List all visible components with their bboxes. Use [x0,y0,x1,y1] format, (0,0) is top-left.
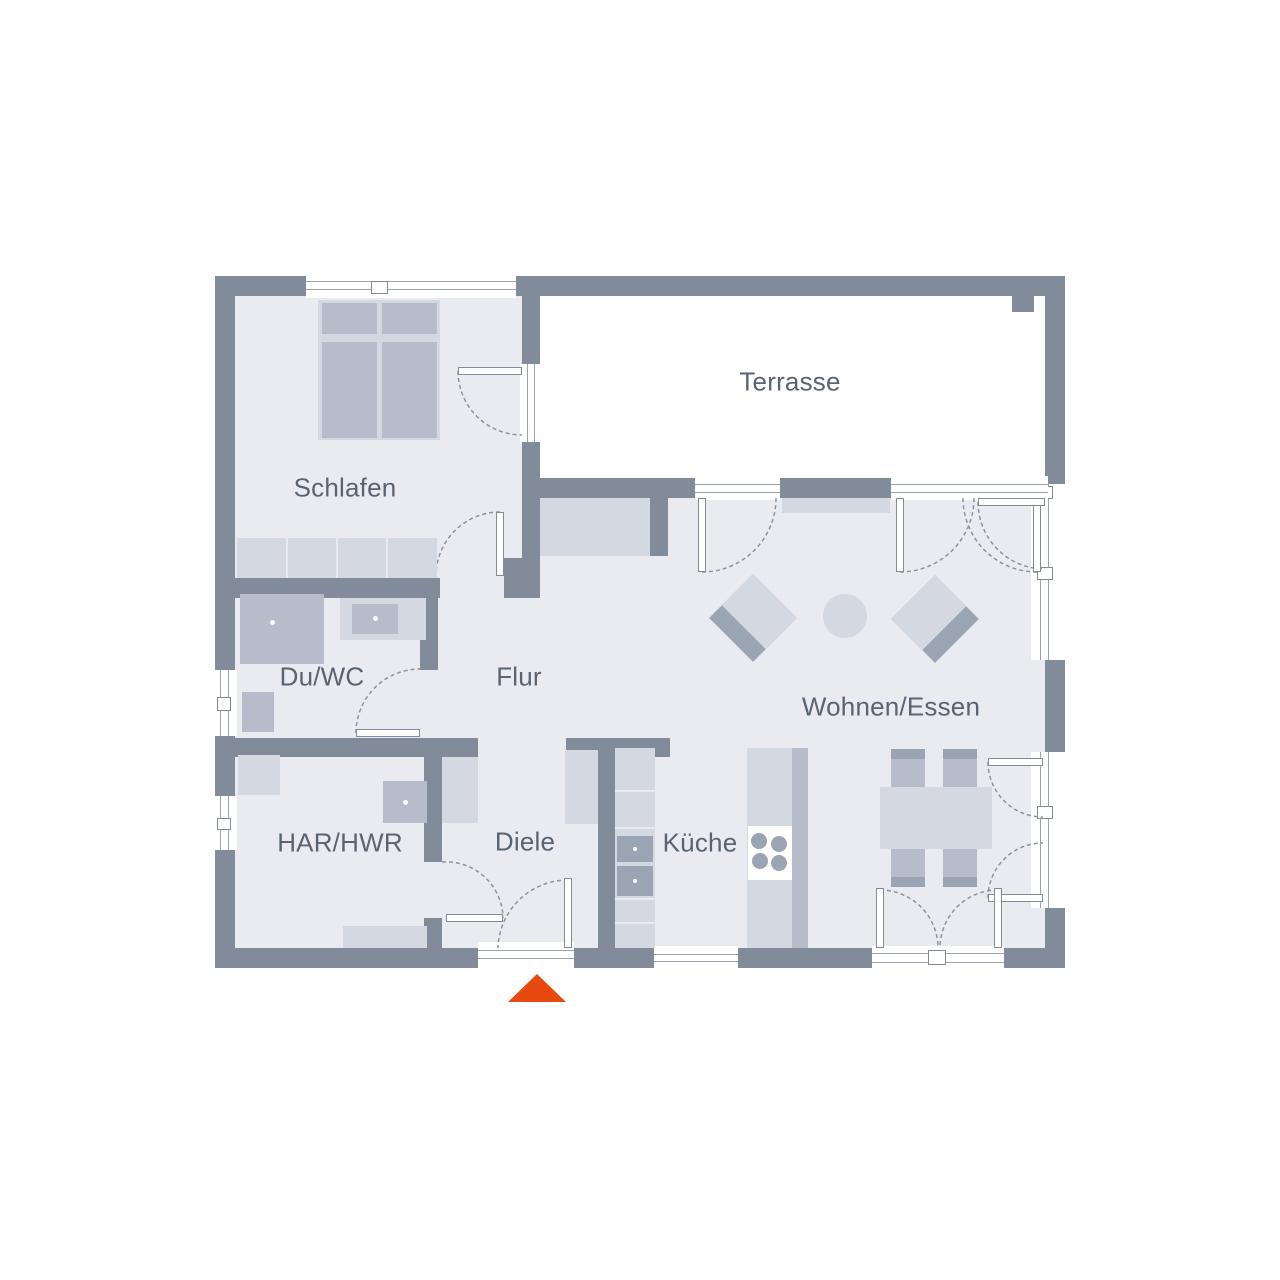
room-label-diele: Diele [495,827,555,858]
washing-machine-dot [403,800,408,805]
terrace-door-west-glazing [695,476,780,500]
wall-flur-stub [650,498,668,556]
dining-chair-3 [891,849,925,887]
oven-dot [633,847,637,851]
cooktop-burner-3 [752,853,768,869]
wall-north-living-b [778,478,891,498]
door-east-upper [978,498,1045,506]
entrance-marker [508,974,566,1002]
wardrobe-diele-right [565,750,598,824]
cooktop-burner-2 [771,836,787,852]
har-shelf [343,926,427,948]
schlafen-terrace-door-glazing [520,364,542,442]
wall-north-living-a [540,478,697,498]
door-schlafen-flur [496,512,504,576]
room-label-schlafen: Schlafen [294,473,397,504]
dining-table [880,787,992,849]
toilet [242,692,274,732]
shower-drain [270,620,275,625]
wall-left [215,276,235,968]
floor-plan: Schlafen Terrasse Du/WC Flur Wohnen/Esse… [0,0,1280,1280]
french-door-south-handle [928,950,946,965]
wall-schlafen-right-lower [522,442,540,598]
room-label-flur: Flur [496,662,542,693]
dining-chair-1 [891,749,925,787]
window-kueche [654,946,738,970]
shower [240,594,324,664]
sideboard [782,498,890,513]
kitchen-counter-edge [792,748,808,948]
bed-mattress-left [322,342,377,438]
dining-chair-2 [943,749,977,787]
wardrobe-schlafen [237,538,437,578]
door-duwc [356,729,420,737]
bed-mattress-right [382,342,437,438]
har-appliance [238,755,280,795]
dining-chair-4 [943,849,977,887]
room-label-har-hwr: HAR/HWR [277,828,403,859]
terrace-post [1012,296,1034,312]
door-terrace-east-right [1033,498,1041,572]
coffee-table [823,594,867,638]
room-label-duwc: Du/WC [280,662,365,693]
window-har-handle [217,818,231,830]
terrace-door-east-glazing [891,476,1048,500]
door-schlafen-terrace [458,367,522,375]
door-terrace-east-left [896,498,904,572]
bed-pillow-right [382,303,437,334]
room-label-wohnen-essen: Wohnen/Essen [802,692,980,723]
room-label-terrasse: Terrasse [739,367,840,398]
entrance-threshold [478,942,574,968]
door-entrance [564,878,572,948]
door-south-right [994,888,1002,948]
door-terrace-west [698,498,706,572]
window-duwc-handle [217,697,231,711]
oven-lower-dot [633,879,637,883]
bed-pillow-left [322,303,377,334]
wall-schlafen-right-upper [522,276,540,366]
cooktop-burner-4 [771,855,787,871]
room-label-kueche: Küche [663,828,738,859]
glazing-east-lower [1031,752,1065,908]
glazing-east-lower-handle [1037,806,1053,819]
wardrobe-flur [540,498,650,556]
wall-schlafen-door-jamb [504,558,522,598]
door-south-left [876,888,884,948]
door-har [446,914,503,922]
window-schlafen-handle [371,281,388,294]
sink-drain [373,616,378,621]
door-east-lower-top [988,758,1043,766]
wardrobe-diele-left [442,757,478,823]
cooktop-burner-1 [751,833,767,849]
wall-kueche-left [598,757,615,948]
window-schlafen [306,274,516,298]
